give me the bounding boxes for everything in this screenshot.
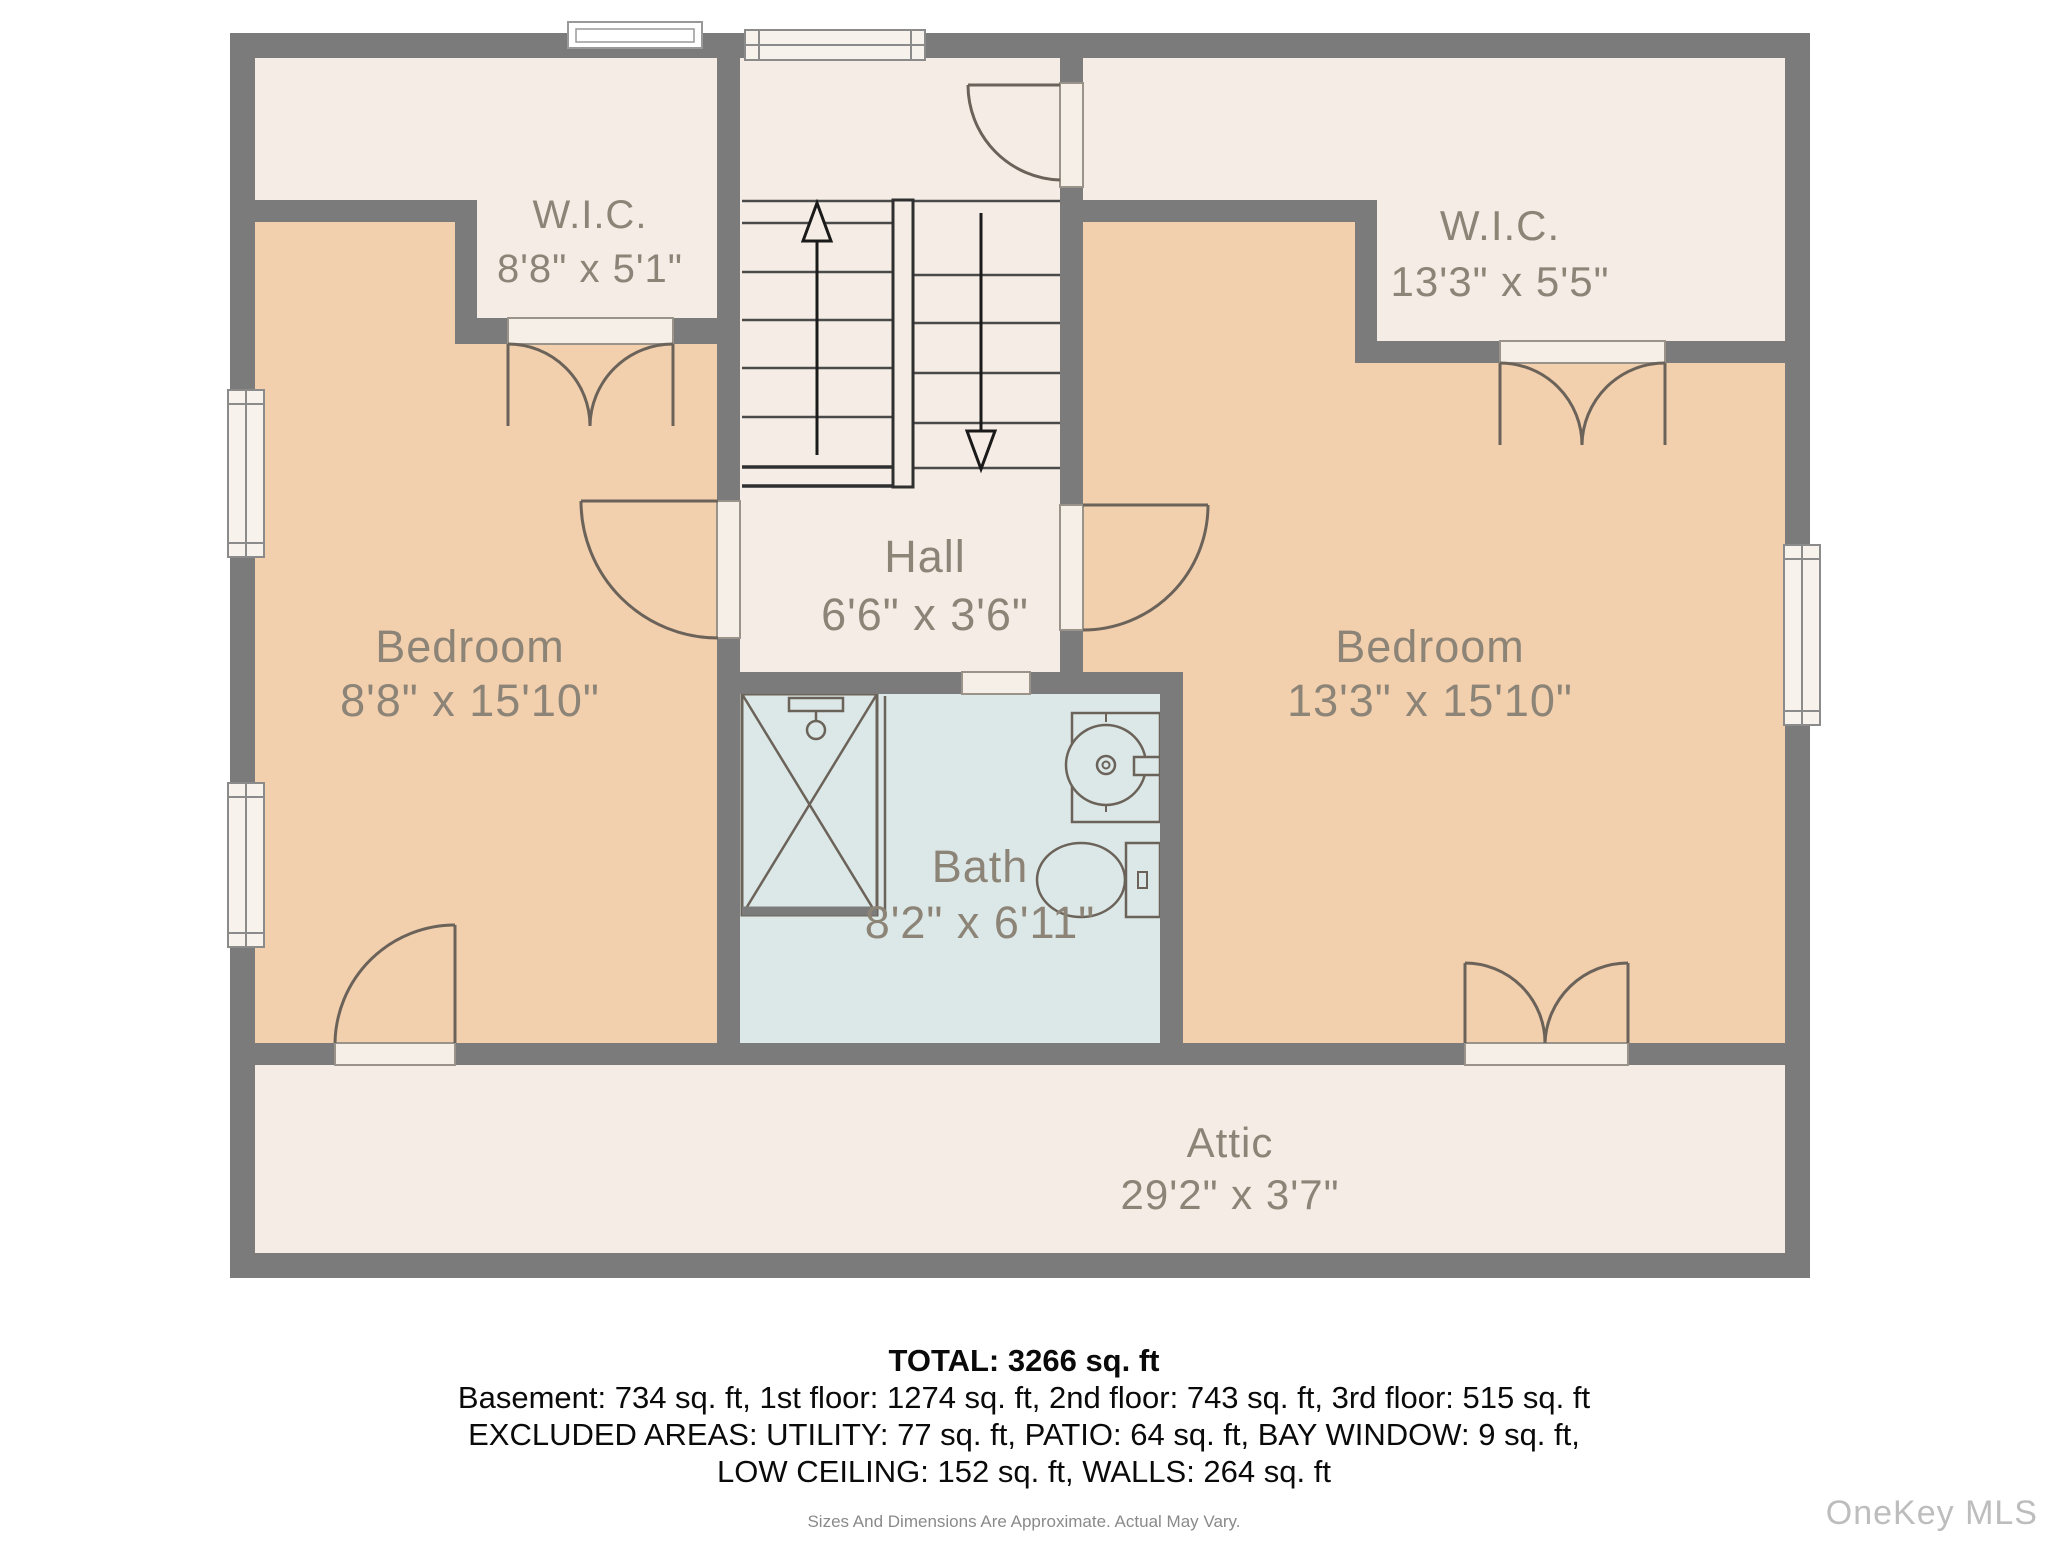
excluded-areas-text-1: EXCLUDED AREAS: UTILITY: 77 sq. ft, PATI… [0,1416,2048,1453]
onekey-mls-watermark: OneKey MLS [1826,1494,2038,1533]
floor-areas-text: Basement: 734 sq. ft, 1st floor: 1274 sq… [0,1379,2048,1416]
label-attic-name: Attic [1187,1119,1274,1166]
stair-rail [893,200,913,487]
label-bedroom-left-dims: 8'8" x 15'10" [340,675,600,726]
label-bath-dims: 8'2" x 6'11" [865,897,1095,948]
window-bay-top [568,22,702,48]
total-area-text: TOTAL: 3266 sq. ft [0,1342,2048,1379]
label-wic-left-dims: 8'8" x 5'1" [497,247,683,291]
room-attic-floor [255,1065,1786,1253]
label-attic-dims: 29'2" x 3'7" [1121,1171,1340,1218]
label-bath-name: Bath [932,841,1029,892]
window-left-lower [228,783,264,947]
window-right [1784,545,1820,725]
excluded-areas-text-2: LOW CEILING: 152 sq. ft, WALLS: 264 sq. … [0,1453,2048,1490]
label-hall-dims: 6'6" x 3'6" [821,589,1029,640]
label-bedroom-right-name: Bedroom [1335,621,1525,672]
label-wic-right-name: W.I.C. [1440,202,1560,249]
floor-plan-drawing: W.I.C. 8'8" x 5'1" Bedroom 8'8" x 15'10"… [0,0,2048,1536]
label-hall-name: Hall [884,531,966,582]
label-wic-right-dims: 13'3" x 5'5" [1391,258,1610,305]
window-left-upper [228,390,264,557]
label-bedroom-right-dims: 13'3" x 15'10" [1287,675,1573,726]
label-wic-left-name: W.I.C. [533,193,648,237]
window-top [745,30,925,60]
label-bedroom-left-name: Bedroom [375,621,565,672]
floor-plan-page: W.I.C. 8'8" x 5'1" Bedroom 8'8" x 15'10"… [0,0,2048,1536]
area-summary: TOTAL: 3266 sq. ft Basement: 734 sq. ft,… [0,1342,2048,1532]
disclaimer-text: Sizes And Dimensions Are Approximate. Ac… [0,1512,2048,1532]
